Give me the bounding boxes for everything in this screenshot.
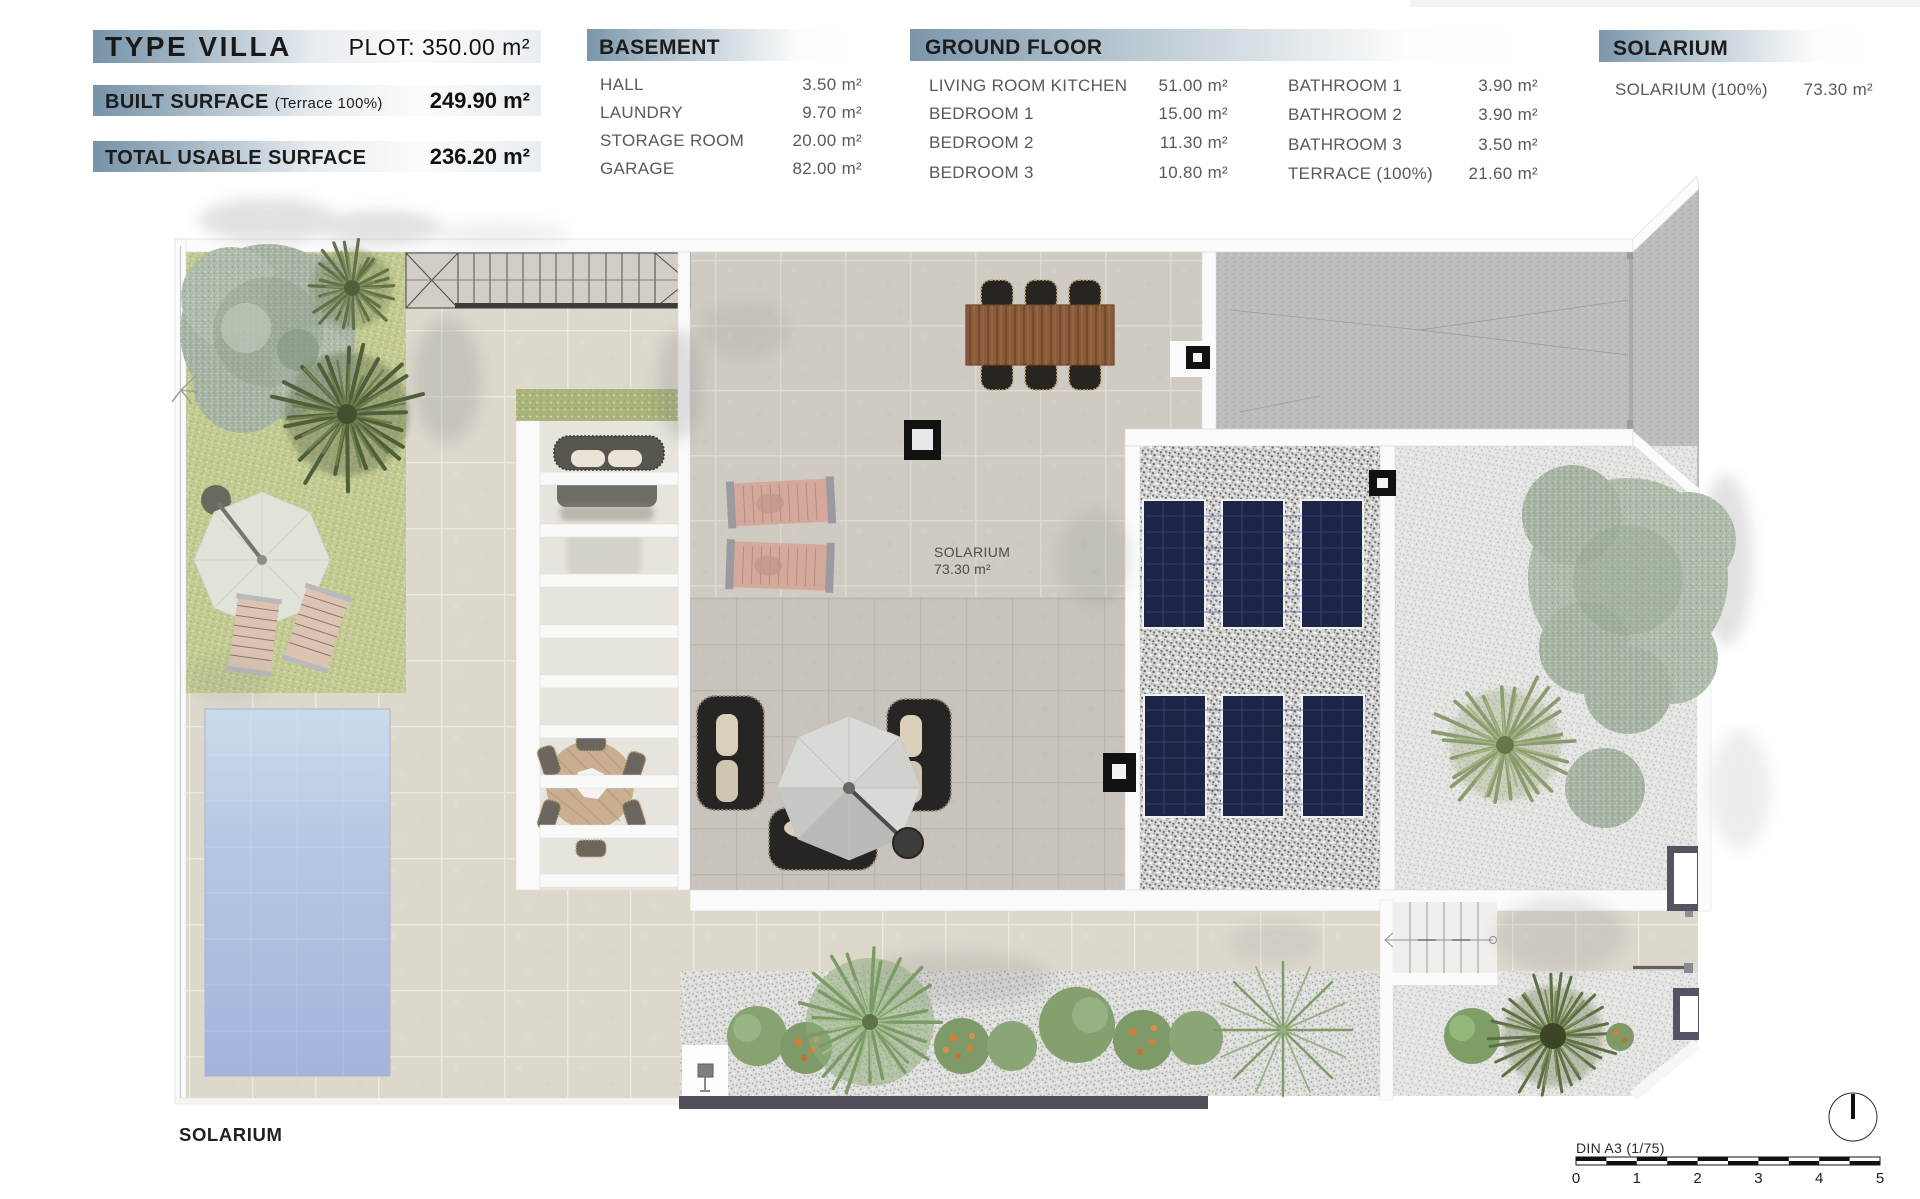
svg-text:BUILT SURFACE (Terrace 100%): BUILT SURFACE (Terrace 100%) xyxy=(105,91,383,113)
svg-text:PLOT: 350.00 m²: PLOT: 350.00 m² xyxy=(349,34,530,60)
svg-text:73.30 m²: 73.30 m² xyxy=(934,561,991,577)
svg-text:SOLARIUM: SOLARIUM xyxy=(179,1124,282,1145)
svg-text:BEDROOM 2: BEDROOM 2 xyxy=(929,133,1034,152)
svg-text:LIVING ROOM KITCHEN: LIVING ROOM KITCHEN xyxy=(929,76,1127,95)
svg-text:1: 1 xyxy=(1633,1170,1641,1187)
svg-text:BATHROOM 1: BATHROOM 1 xyxy=(1288,76,1402,95)
svg-text:TERRACE (100%): TERRACE (100%) xyxy=(1288,164,1433,183)
svg-text:TYPE VILLA: TYPE VILLA xyxy=(105,31,292,62)
svg-text:82.00 m²: 82.00 m² xyxy=(793,159,863,178)
svg-text:20.00 m²: 20.00 m² xyxy=(793,131,863,150)
svg-text:21.60 m²: 21.60 m² xyxy=(1469,164,1539,183)
svg-text:BEDROOM 1: BEDROOM 1 xyxy=(929,104,1034,123)
svg-text:249.90 m²: 249.90 m² xyxy=(430,88,530,113)
svg-text:4: 4 xyxy=(1815,1170,1823,1187)
svg-text:5: 5 xyxy=(1876,1170,1884,1187)
svg-text:STORAGE ROOM: STORAGE ROOM xyxy=(600,131,744,150)
svg-text:236.20 m²: 236.20 m² xyxy=(430,144,530,169)
svg-text:DIN A3 (1/75): DIN A3 (1/75) xyxy=(1576,1140,1665,1156)
svg-text:73.30 m²: 73.30 m² xyxy=(1804,80,1874,99)
svg-text:LAUNDRY: LAUNDRY xyxy=(600,103,683,122)
svg-text:3.50 m²: 3.50 m² xyxy=(802,75,862,94)
svg-text:3.90 m²: 3.90 m² xyxy=(1478,105,1538,124)
svg-text:BATHROOM 2: BATHROOM 2 xyxy=(1288,105,1402,124)
svg-text:SOLARIUM: SOLARIUM xyxy=(934,544,1010,560)
svg-text:11.30 m²: 11.30 m² xyxy=(1160,133,1228,152)
svg-text:51.00 m²: 51.00 m² xyxy=(1159,76,1229,95)
svg-text:SOLARIUM: SOLARIUM xyxy=(1613,37,1728,60)
svg-text:BASEMENT: BASEMENT xyxy=(599,36,720,59)
svg-text:3: 3 xyxy=(1754,1170,1762,1187)
svg-text:2: 2 xyxy=(1693,1170,1701,1187)
svg-text:9.70 m²: 9.70 m² xyxy=(802,103,862,122)
svg-text:TOTAL USABLE SURFACE: TOTAL USABLE SURFACE xyxy=(105,147,366,169)
svg-text:3.90 m²: 3.90 m² xyxy=(1478,76,1538,95)
svg-text:BEDROOM 3: BEDROOM 3 xyxy=(929,163,1034,182)
svg-text:10.80 m²: 10.80 m² xyxy=(1159,163,1229,182)
svg-text:GROUND FLOOR: GROUND FLOOR xyxy=(925,36,1102,59)
svg-text:0: 0 xyxy=(1572,1170,1580,1187)
svg-text:15.00 m²: 15.00 m² xyxy=(1159,104,1229,123)
svg-text:BATHROOM 3: BATHROOM 3 xyxy=(1288,135,1402,154)
svg-text:3.50 m²: 3.50 m² xyxy=(1478,135,1538,154)
svg-text:SOLARIUM (100%): SOLARIUM (100%) xyxy=(1615,80,1768,99)
svg-text:HALL: HALL xyxy=(600,75,644,94)
svg-text:GARAGE: GARAGE xyxy=(600,159,675,178)
